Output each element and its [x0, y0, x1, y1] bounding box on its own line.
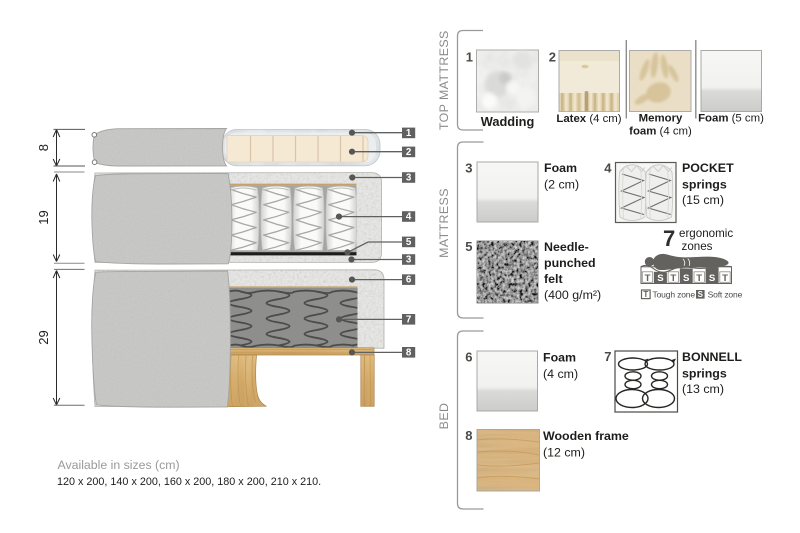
svg-text:29: 29 — [36, 330, 51, 344]
svg-text:T: T — [722, 273, 728, 284]
svg-text:springs: springs — [682, 178, 727, 192]
svg-text:Wadding: Wadding — [481, 114, 535, 129]
svg-text:Wooden frame: Wooden frame — [543, 429, 629, 443]
svg-text:3: 3 — [406, 173, 412, 184]
svg-text:8: 8 — [36, 144, 51, 151]
svg-text:T: T — [645, 273, 651, 284]
svg-text:T: T — [643, 290, 648, 299]
svg-text:Foam (5 cm): Foam (5 cm) — [698, 113, 764, 125]
svg-text:POCKET: POCKET — [682, 161, 734, 175]
svg-text:(2 cm): (2 cm) — [544, 178, 579, 192]
svg-text:6: 6 — [465, 350, 472, 365]
svg-text:TOP MATTRESS: TOP MATTRESS — [437, 30, 451, 130]
svg-text:Foam: Foam — [544, 161, 577, 175]
svg-text:Latex (4 cm): Latex (4 cm) — [556, 113, 621, 125]
svg-text:5: 5 — [465, 239, 472, 254]
svg-text:S: S — [698, 290, 704, 299]
svg-text:S: S — [683, 273, 690, 284]
svg-text:(400 g/m²): (400 g/m²) — [544, 288, 601, 302]
svg-text:T: T — [696, 273, 702, 284]
svg-text:120 x 200, 140 x 200, 160 x 20: 120 x 200, 140 x 200, 160 x 200, 180 x 2… — [57, 476, 321, 488]
svg-text:T: T — [670, 273, 676, 284]
svg-text:Foam: Foam — [543, 351, 576, 365]
svg-text:felt: felt — [544, 272, 563, 286]
svg-text:(15 cm): (15 cm) — [682, 193, 724, 207]
svg-text:3: 3 — [406, 255, 412, 266]
svg-text:(12 cm): (12 cm) — [543, 446, 585, 460]
svg-text:7: 7 — [604, 349, 611, 364]
svg-text:foam (4 cm): foam (4 cm) — [629, 126, 692, 138]
svg-text:ergonomic: ergonomic — [679, 227, 733, 240]
svg-text:S: S — [657, 273, 664, 284]
svg-text:Soft zone: Soft zone — [708, 290, 743, 300]
svg-text:Tough zone: Tough zone — [653, 290, 696, 300]
svg-text:zones: zones — [682, 240, 713, 253]
svg-text:Available in sizes (cm): Available in sizes (cm) — [58, 458, 180, 472]
svg-text:8: 8 — [406, 347, 412, 358]
svg-text:4: 4 — [406, 212, 412, 223]
svg-text:2: 2 — [549, 50, 556, 65]
svg-text:19: 19 — [36, 210, 51, 224]
svg-text:3: 3 — [465, 161, 472, 176]
svg-text:(4 cm): (4 cm) — [543, 367, 578, 381]
svg-text:Needle-: Needle- — [544, 240, 589, 254]
svg-text:springs: springs — [682, 367, 727, 381]
svg-text:(13 cm): (13 cm) — [682, 382, 724, 396]
svg-text:1: 1 — [406, 128, 412, 139]
svg-text:8: 8 — [465, 428, 472, 443]
svg-text:MATTRESS: MATTRESS — [437, 188, 451, 258]
svg-text:7: 7 — [663, 226, 675, 251]
svg-text:BED: BED — [437, 403, 451, 430]
svg-text:7: 7 — [406, 314, 412, 325]
svg-text:BONNELL: BONNELL — [682, 350, 742, 364]
svg-text:Memory: Memory — [639, 113, 683, 125]
svg-text:5: 5 — [406, 237, 412, 248]
svg-text:S: S — [709, 273, 716, 284]
svg-text:2: 2 — [406, 147, 412, 158]
svg-text:punched: punched — [544, 256, 596, 270]
svg-text:4: 4 — [604, 161, 612, 176]
svg-text:1: 1 — [466, 50, 473, 65]
svg-text:6: 6 — [406, 275, 412, 286]
